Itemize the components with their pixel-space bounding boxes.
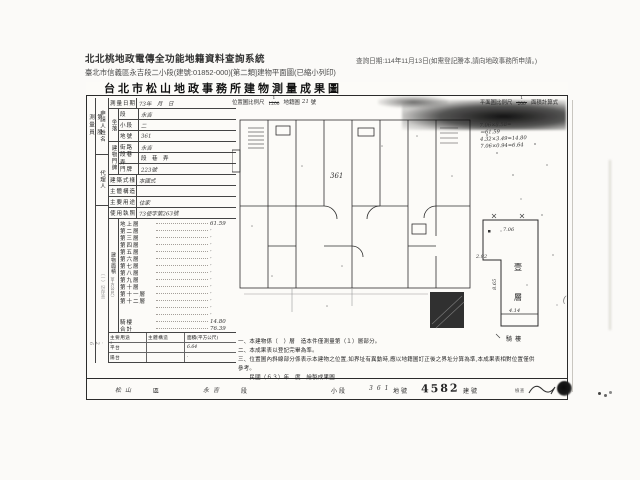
structure-row: 主體構造 <box>109 186 236 197</box>
dot-leader <box>156 328 208 329</box>
note-line: 三、位置圖內斜線部分係表示本建物之位置,如界址有異動時,應以地籍圖訂正後之界址分… <box>238 356 538 374</box>
plot-number-label: 361 <box>330 172 343 180</box>
annex-structure <box>147 343 185 352</box>
section-unit: 段 <box>241 386 249 395</box>
map-number-value: 21 <box>302 99 309 105</box>
subsection-label: 小段 <box>119 120 139 130</box>
dot-leader <box>156 321 208 322</box>
scan-edge-dots <box>598 392 601 395</box>
dot-leader <box>156 272 208 273</box>
unit-floor-plan: 7.06 2.92 8.65 壹 層 4.14 騎樓 <box>476 210 566 344</box>
closet-box <box>412 224 426 234</box>
system-title: 北北桃地政電傳全功能地籍資料查詢系統 <box>85 51 265 65</box>
location-row-section: 段 永吉 <box>119 109 236 120</box>
dot-leader <box>156 244 208 245</box>
annex-usage: 平台 <box>109 343 147 352</box>
stair-box <box>276 126 290 135</box>
annex-usage: 陽台 <box>109 353 147 362</box>
plan-scale-label: 平面圖比例尺 <box>480 98 512 106</box>
structure-label: 主體構造 <box>109 186 137 196</box>
floor-area-label-text: 建物面積 <box>110 252 117 274</box>
building-style-row: 建築式樣 本國式 <box>109 175 236 186</box>
signature-mark <box>527 381 557 397</box>
license-row: 使用執照 73使字第263號 <box>109 208 236 219</box>
parcel-unit: 地號 <box>393 386 409 395</box>
door-number-value: 223號 <box>139 164 236 174</box>
subsection-unit: 小段 <box>331 386 347 395</box>
dot-leader <box>156 265 208 266</box>
usage-value: 住家 <box>137 197 236 207</box>
location-scale-label: 位置圖比例尺 <box>232 98 264 106</box>
location-label: 坐落 <box>109 109 119 141</box>
document-subtitle: 臺北市信義區永吉段二小段(建號:01852-000)[第二類]建物平面圖(已縮小… <box>85 67 336 78</box>
dim-bottom: 4.14 <box>508 308 520 314</box>
agent-label: 代理人 <box>96 155 108 206</box>
floor-row: 第十二層· <box>119 297 236 304</box>
district-value: 松山 <box>115 385 135 394</box>
floor-plan-scale: 平面圖比例尺 1 200 面積計算式 <box>480 97 558 107</box>
stair-box <box>358 128 374 136</box>
query-date-note: 查詢日期:114年11月13日(如需登記謄本,請向地政事務所申請。) <box>356 55 537 65</box>
location-row-parcel: 地號 361 <box>119 131 236 141</box>
stair-treads <box>248 128 458 148</box>
document-footer: 松山 區 永吉 段 小段 361 地號 4582 建號 檢查 <box>87 378 567 399</box>
dot-leader <box>156 223 208 224</box>
building-style-label: 建築式樣 <box>109 175 137 185</box>
check-label: 檢查 <box>515 388 525 394</box>
scanned-survey-document: 台北市松山地政事務所建物測量成果圖 第 股 測量員 申請人姓名 代理人 （一）份… <box>86 82 568 400</box>
annex-area: · <box>185 355 236 360</box>
building-style-value: 本國式 <box>137 175 236 185</box>
usage-row: 主要用途 住家 <box>109 197 236 208</box>
floor-rows: 地上層61.59 第二層· 第三層· 第四層· 第五層· 第六層· 第七層· 第… <box>119 219 236 332</box>
door-arc <box>367 206 380 219</box>
surveyor-label: 測量員 <box>87 114 95 250</box>
floor-character-2: 層 <box>514 293 522 302</box>
file-note-label: （一）份存查 7.26 <box>96 206 108 363</box>
building-block-outline <box>240 120 470 288</box>
dot-leader <box>156 286 208 287</box>
cadastral-map-label: 地籍圖 <box>284 98 300 106</box>
building-number-stamp: 4582 <box>421 381 460 395</box>
location-map-drawing: 361 <box>232 106 476 338</box>
license-label: 使用執照 <box>109 208 137 218</box>
floor-area-table: 建物面積 （平方公尺） 地上層61.59 第二層· 第三層· 第四層· 第五層·… <box>109 219 236 333</box>
door-number-row: 門牌 223號 <box>119 164 236 174</box>
district-unit: 區 <box>153 386 161 395</box>
dim-height: 8.65 <box>492 279 498 290</box>
wall-mark <box>488 230 491 233</box>
door-arc <box>352 246 363 257</box>
floor-character-1: 壹 <box>514 262 522 272</box>
survey-form: 申請人姓名 代理人 （一）份存查 7.26 測量日期 73年 月 日 坐落 段 … <box>95 98 236 363</box>
parcel-number: 361 <box>369 385 392 392</box>
scale-denominator: 200 <box>517 103 525 108</box>
dot-leader <box>156 314 208 315</box>
usage-label: 主要用途 <box>109 197 137 207</box>
file-note-text: （一）份存查 <box>99 271 105 299</box>
dot-leader <box>156 300 208 301</box>
annex-usage-header: 主要用途 <box>109 333 147 342</box>
street-value: 永吉 <box>139 142 236 152</box>
total-label: 合計 <box>119 325 154 333</box>
subsection-value: 二 <box>139 120 236 130</box>
structure-value <box>137 190 236 192</box>
note-line: 一、本建物係（ ）層 造本件僅測量第（１）層部分。 <box>238 338 538 347</box>
section-value: 永吉 <box>203 385 223 394</box>
lane-label: 段巷弄 <box>119 153 139 163</box>
map-number-unit: 號 <box>311 98 316 106</box>
section-value: 永吉 <box>139 109 236 119</box>
applicant-column: 申請人姓名 代理人 （一）份存查 7.26 <box>96 98 109 363</box>
applicant-name-label: 申請人姓名 <box>96 98 108 155</box>
lane-row: 段巷弄 段 巷 弄 <box>119 153 236 164</box>
section-label: 段 <box>119 109 139 119</box>
annex-row: 平台 6.64 <box>109 343 236 353</box>
scale-fraction: 1 200 <box>516 97 527 107</box>
lane-value: 段 巷 弄 <box>139 154 236 162</box>
ink-stamp <box>557 381 572 396</box>
survey-notes: 一、本建物係（ ）層 造本件僅測量第（１）層部分。 二、本成果表以登記完畢為準。… <box>238 338 538 383</box>
address-label: 建物門牌 <box>109 142 119 174</box>
parcel-label: 地號 <box>119 131 139 141</box>
annex-structure-header: 主體構造 <box>147 333 185 342</box>
door-number-label: 門牌 <box>119 164 139 174</box>
floor-area-unit: （平方公尺） <box>111 274 116 300</box>
area-calculation-label: 面積計算式 <box>531 98 558 106</box>
annex-building-table: 主要用途 主體構造 面積(平方公尺) 平台 6.64 陽台 · <box>109 333 236 363</box>
building-unit: 建號 <box>463 386 479 395</box>
annex-area: 6.64 <box>185 345 236 350</box>
dot-leader <box>156 230 208 231</box>
survey-date-row: 測量日期 73年 月 日 <box>109 98 236 109</box>
annex-structure <box>147 353 185 362</box>
dot-leader <box>156 258 208 259</box>
license-value: 73使字第263號 <box>137 208 236 218</box>
annex-header-row: 主要用途 主體構造 面積(平方公尺) <box>109 333 236 343</box>
door-arc <box>324 206 337 219</box>
door-arc <box>424 206 436 218</box>
note-line: 二、本成果表以登記完畢為準。 <box>238 347 538 356</box>
location-group: 坐落 段 永吉 小段 二 地號 361 <box>109 109 236 142</box>
total-row: 合計76.39 <box>119 325 236 332</box>
faint-lines <box>244 288 428 312</box>
survey-date-label: 測量日期 <box>109 98 137 108</box>
dim-top: 7.06 <box>503 227 515 233</box>
floor-row: · <box>119 304 236 311</box>
floor-area-label: 建物面積 （平方公尺） <box>109 219 119 332</box>
scan-edge-line <box>572 100 573 392</box>
dot-leader <box>156 279 208 280</box>
survey-document-title: 台北市松山地政事務所建物測量成果圖 <box>104 80 342 96</box>
left-annex-outline <box>232 150 240 172</box>
survey-date-value: 73年 月 日 <box>137 98 236 108</box>
dot-leader <box>156 293 208 294</box>
address-group: 建物門牌 街路 永吉 段巷弄 段 巷 弄 門牌 223號 <box>109 142 236 175</box>
annex-area-header: 面積(平方公尺) <box>185 335 236 341</box>
dot-leader <box>156 307 208 308</box>
annex-row: 陽台 · <box>109 353 236 362</box>
location-row-subsection: 小段 二 <box>119 120 236 131</box>
parcel-value: 361 <box>139 132 236 140</box>
dim-left: 2.92 <box>476 254 487 260</box>
form-rows: 測量日期 73年 月 日 坐落 段 永吉 小段 二 地號 361 <box>109 98 236 363</box>
dot-leader <box>156 251 208 252</box>
scan-edge-streak <box>609 160 611 330</box>
area-calculations: 7.06×8.58= ＝61.59 4.32×3.49=14.80 7.06×0… <box>480 121 528 151</box>
dot-leader <box>156 237 208 238</box>
